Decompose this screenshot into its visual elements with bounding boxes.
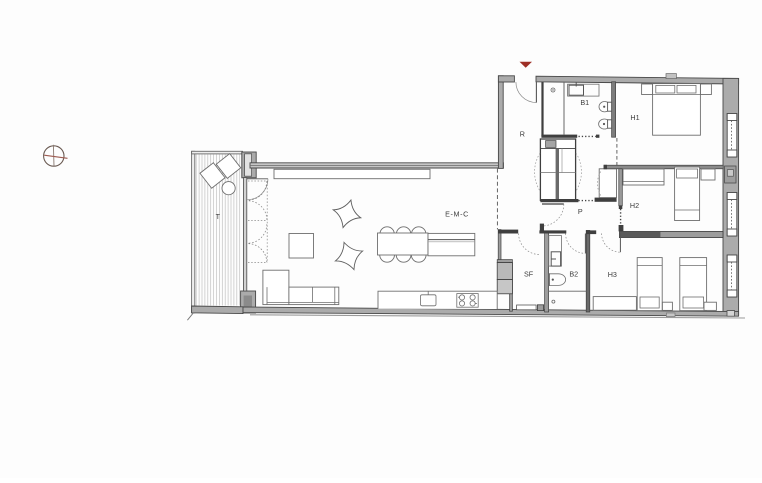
svg-text:B1: B1	[580, 98, 589, 107]
svg-text:P: P	[578, 207, 583, 216]
svg-text:T: T	[216, 212, 221, 221]
svg-text:R: R	[520, 130, 525, 139]
svg-text:E-M-C: E-M-C	[445, 210, 469, 219]
svg-text:SF: SF	[524, 270, 534, 279]
svg-text:H3: H3	[608, 270, 617, 279]
svg-text:H2: H2	[630, 201, 639, 210]
svg-text:H1: H1	[630, 113, 639, 122]
svg-text:B2: B2	[569, 270, 578, 279]
